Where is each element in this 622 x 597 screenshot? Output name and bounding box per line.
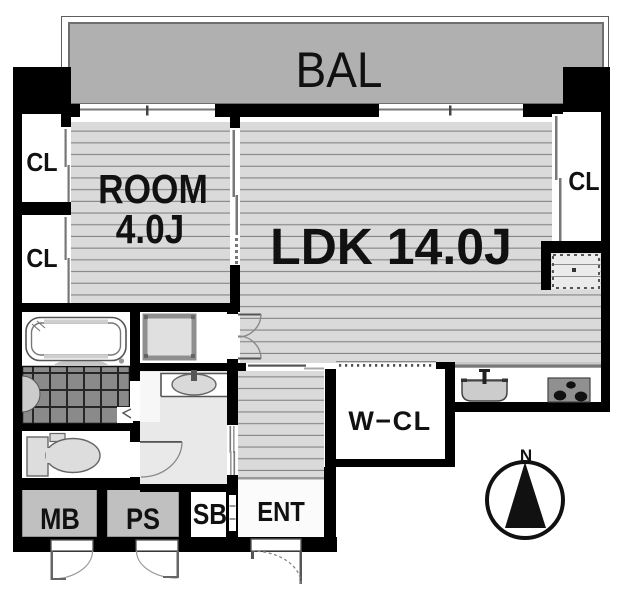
svg-text:MB: MB [40,502,80,535]
svg-text:CL: CL [26,149,57,177]
svg-text:CL: CL [568,168,599,196]
svg-text:CL: CL [26,245,57,273]
svg-text:4.0J: 4.0J [116,207,185,253]
svg-text:PS: PS [126,502,160,535]
svg-text:SB: SB [193,498,227,530]
svg-text:LDK 14.0J: LDK 14.0J [270,218,512,276]
svg-text:N: N [520,446,532,465]
svg-text:W−CL: W−CL [348,406,431,436]
svg-text:ENT: ENT [257,495,305,527]
svg-text:BAL: BAL [296,43,383,98]
